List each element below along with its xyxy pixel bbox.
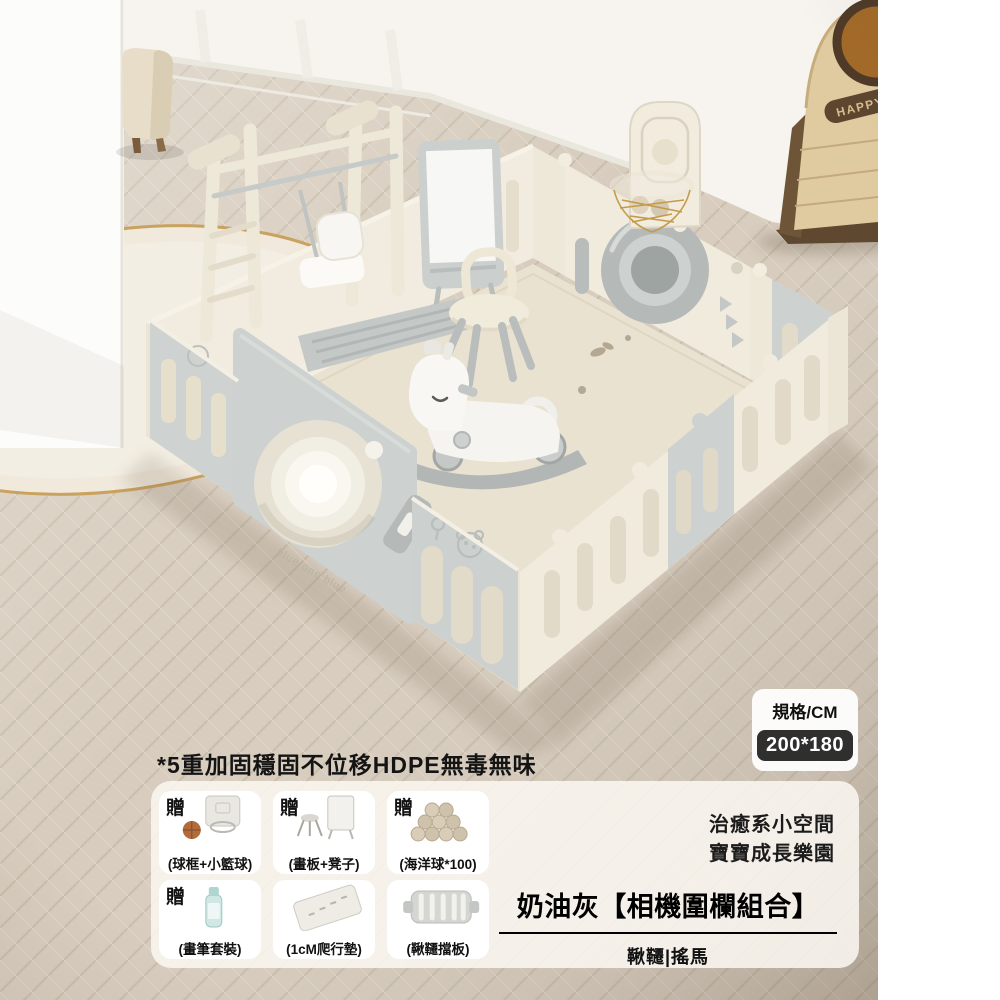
gift-caption: (畫筆套裝) (155, 942, 265, 957)
spec-value-badge: 200*180 (757, 730, 853, 761)
basketball-hoop-icon (178, 794, 248, 847)
spec-card: 規格/CM 200*180 (752, 689, 858, 771)
gift-caption: (鞦韆擋板) (383, 942, 493, 957)
gift-card-mat: (1cM爬行墊) (273, 880, 375, 959)
product-subtitle: 鞦韆|搖馬 (499, 943, 837, 969)
slogan-line-2: 寶寶成長樂園 (709, 840, 835, 869)
gift-grid: 贈 (球框+小籃球) 贈 (畫板+凳子) 贈 (159, 791, 501, 959)
product-title: 奶油灰【相機圍欄組合】 (499, 885, 837, 934)
white-margin (878, 0, 1000, 1000)
gift-badge: 贈 (166, 793, 185, 820)
gift-card-easel: 贈 (畫板+凳子) (273, 791, 375, 874)
gift-card-paint: 贈 (畫筆套裝) (159, 880, 261, 959)
swing-baffle-icon (401, 883, 481, 936)
gift-card-balls: 贈 (海洋球*100) (387, 791, 489, 874)
spec-label: 規格/CM (752, 698, 858, 723)
gift-badge: 贈 (394, 793, 413, 820)
gift-card-hoop: 贈 (球框+小籃球) (159, 791, 261, 874)
gift-badge: 贈 (280, 793, 299, 820)
gift-badge: 贈 (166, 882, 185, 909)
gift-caption: (1cM爬行墊) (269, 942, 379, 957)
ocean-balls-icon (402, 794, 480, 847)
gift-caption: (畫板+凳子) (269, 857, 379, 872)
crawl-mat-icon (287, 883, 367, 936)
slogan-line-1: 治癒系小空間 (709, 811, 835, 840)
headline-text: *5重加固穩固不位移HDPE無毒無味 (157, 746, 537, 780)
title-block: 奶油灰【相機圍欄組合】 鞦韆|搖馬 (499, 885, 837, 969)
gift-card-baffle: (鞦韆擋板) (387, 880, 489, 959)
info-panel: 贈 (球框+小籃球) 贈 (畫板+凳子) 贈 (151, 781, 859, 968)
slogan: 治癒系小空間 寶寶成長樂園 (709, 811, 835, 869)
easel-stool-icon (292, 794, 362, 847)
paint-set-icon (178, 883, 248, 936)
gift-caption: (球框+小籃球) (155, 857, 265, 872)
gift-caption: (海洋球*100) (383, 857, 493, 872)
